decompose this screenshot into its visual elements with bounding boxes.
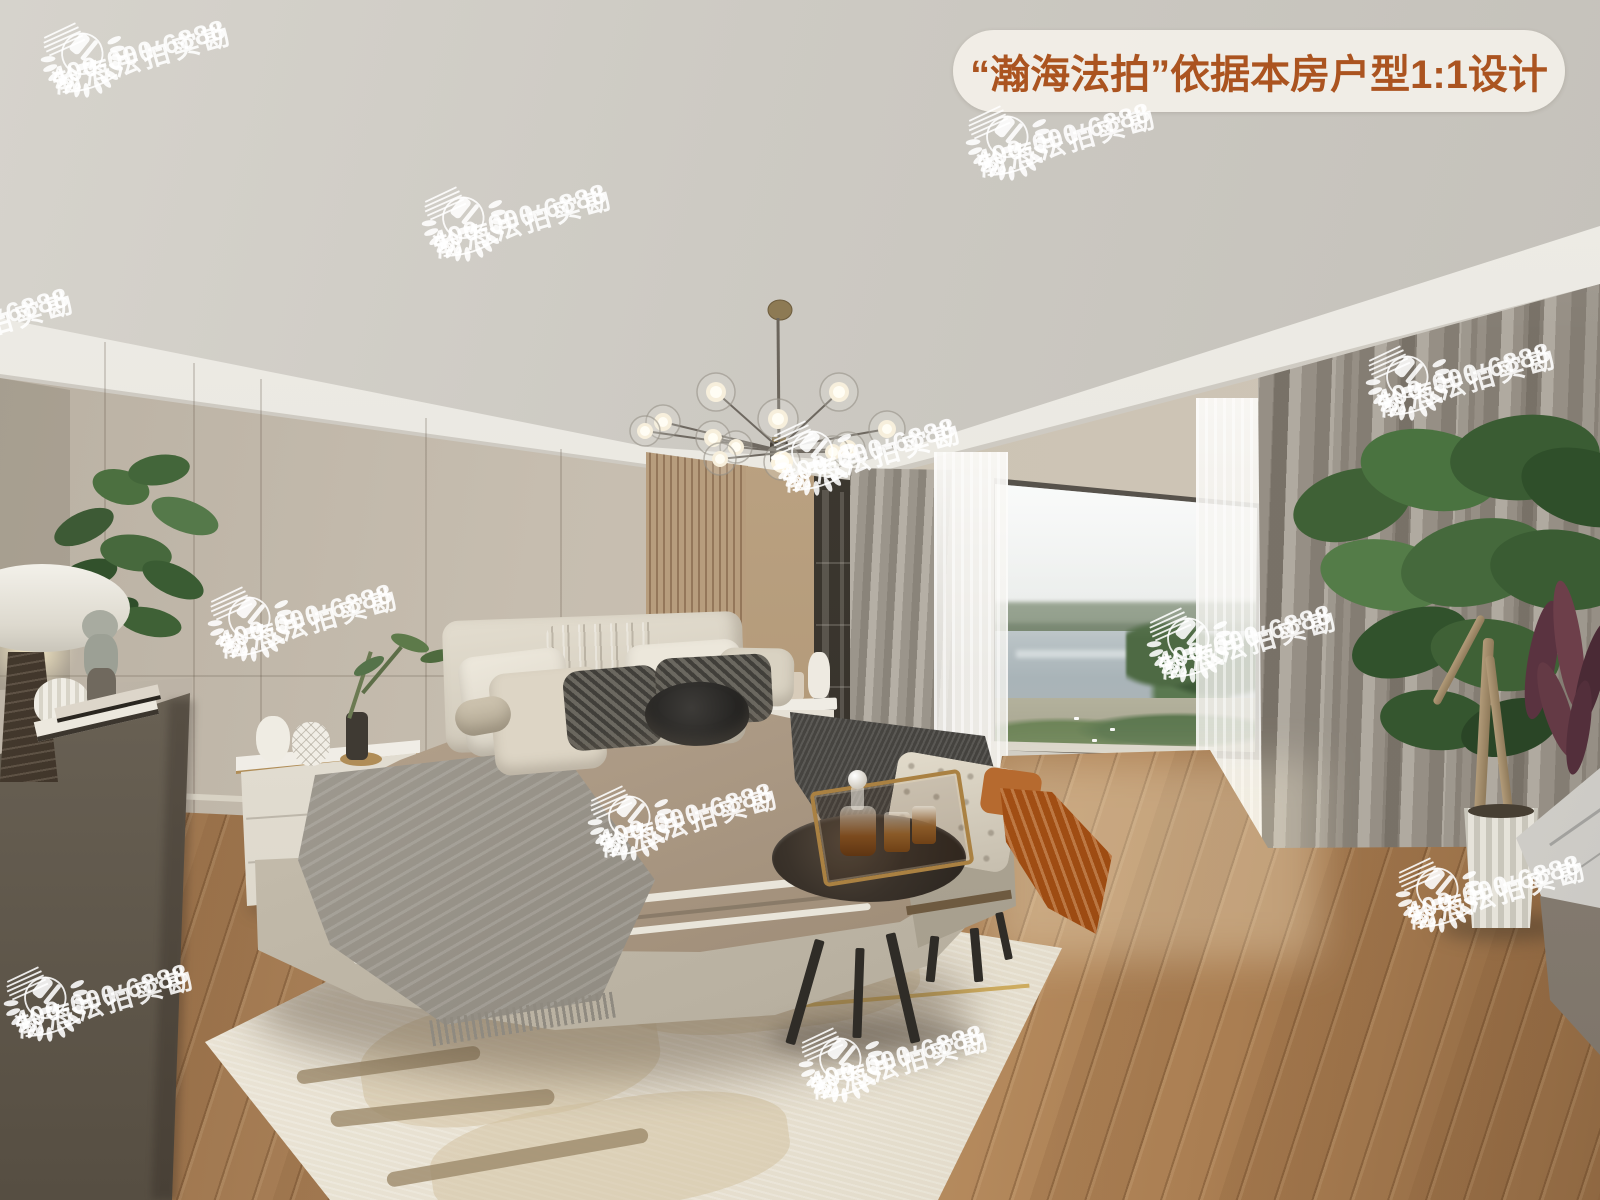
lidded-jar (808, 652, 830, 698)
lattice-vase (292, 722, 330, 766)
whiskey-glass (884, 812, 910, 852)
vase (256, 716, 290, 762)
sputnik-chandelier (620, 288, 920, 498)
decanter-neck (851, 786, 864, 810)
whiskey-decanter (840, 806, 876, 856)
whiskey-glass (912, 806, 936, 844)
bedroom-survey-photo: “瀚海法拍”依据本房户型1:1设计 瀚海法拍实勘400-000-6888 瀚海法… (0, 0, 1600, 1200)
decanter-stopper (848, 770, 867, 789)
dark-bud-vase (346, 712, 368, 760)
design-claim-badge: “瀚海法拍”依据本房户型1:1设计 (953, 30, 1565, 112)
table-shadow (770, 1018, 980, 1058)
planter-soil (1468, 804, 1534, 818)
badge-text: “瀚海法拍”依据本房户型1:1设计 (970, 42, 1548, 100)
